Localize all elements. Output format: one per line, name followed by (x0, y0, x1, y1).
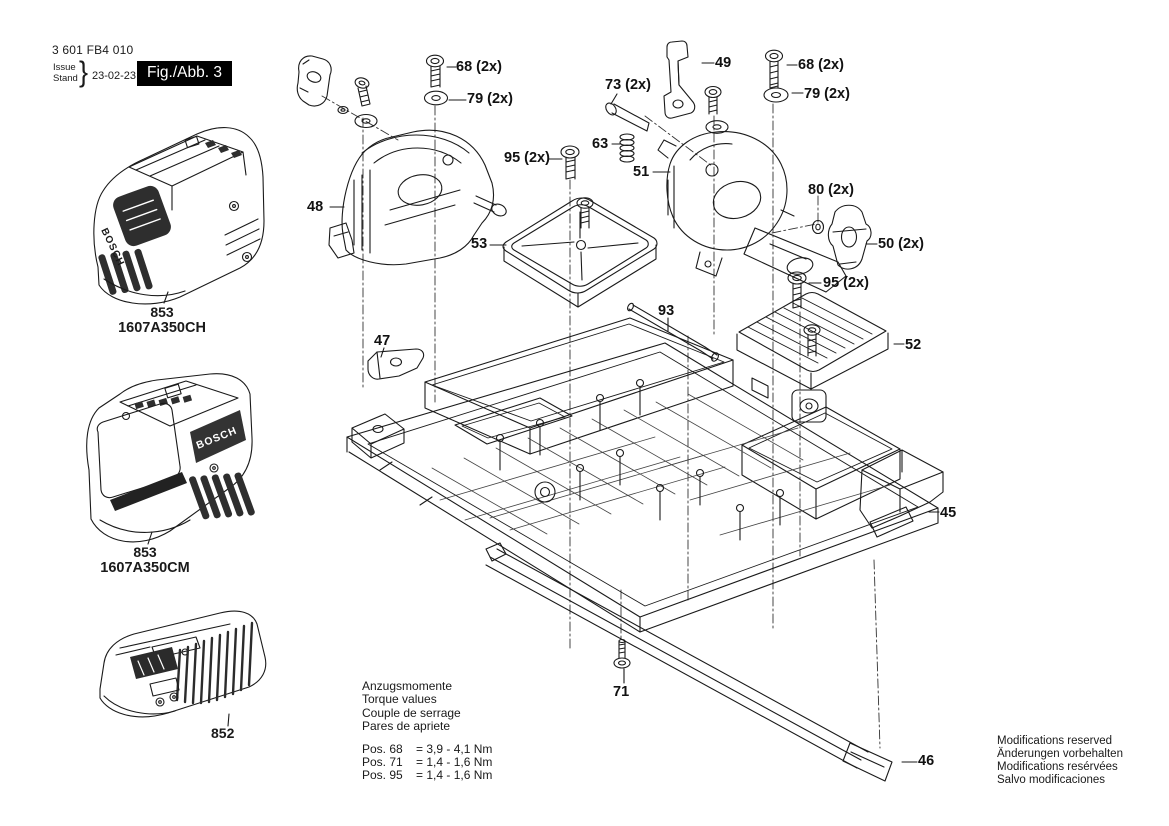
issue-label-de: Stand (53, 74, 78, 85)
washer-left-drawing (355, 115, 377, 128)
pin-73-drawing (604, 101, 649, 131)
issue-date: 23-02-23 (92, 70, 136, 82)
torque-value: = 1,4 - 1,6 Nm (416, 756, 492, 769)
callout-68-left: 68 (2x) (456, 59, 502, 75)
callout-48: 48 (307, 199, 323, 215)
battery-cm-ref: 853 (80, 545, 210, 560)
screw-71-drawing (614, 640, 630, 669)
part-50-knob-drawing (828, 205, 871, 269)
battery-ch-drawing: BOSCH (94, 128, 264, 304)
washer-79-right-drawing (764, 88, 788, 102)
part-53-drawing (503, 198, 657, 307)
issue-brace: } (79, 56, 88, 89)
modifications-fr: Modifications resérvées (997, 761, 1123, 774)
torque-pos: Pos. 95 (362, 769, 416, 782)
callout-52: 52 (905, 337, 921, 353)
callout-68-right: 68 (2x) (798, 57, 844, 73)
callout-79-right: 79 (2x) (804, 86, 850, 102)
screw-95-in-53-drawing (577, 198, 593, 228)
torque-value: = 3,9 - 4,1 Nm (416, 743, 492, 756)
document-part-number: 3 601 FB4 010 (52, 43, 133, 57)
battery-cm-label: 853 1607A350CM (80, 545, 210, 576)
screw-68-right-drawing (766, 50, 783, 88)
battery-cm-model: 1607A350CM (80, 560, 210, 576)
callout-46: 46 (918, 753, 934, 769)
callout-47: 47 (374, 333, 390, 349)
washer-79-left-drawing (425, 91, 448, 105)
cable-clamp-drawing (297, 56, 331, 106)
figure-number-badge: Fig./Abb. 3 (137, 61, 232, 86)
battery-ch-model: 1607A350CH (100, 320, 224, 336)
torque-row: Pos. 95 = 1,4 - 1,6 Nm (362, 769, 492, 782)
charger-ref: 852 (211, 726, 234, 741)
issue-label: Issue Stand (53, 63, 78, 84)
callout-49: 49 (715, 55, 731, 71)
screw-68-second-drawing (705, 87, 721, 115)
callout-93: 93 (658, 303, 674, 319)
small-screw-left-drawing (354, 76, 370, 106)
callout-53: 53 (471, 236, 487, 252)
torque-rows: Pos. 68 = 3,9 - 4,1 Nm Pos. 71 = 1,4 - 1… (362, 743, 492, 783)
modifications-es: Salvo modificaciones (997, 774, 1123, 787)
part-51-drawing (658, 132, 846, 292)
torque-note: Anzugsmomente Torque values Couple de se… (362, 680, 492, 783)
modifications-en: Modifications reserved (997, 735, 1123, 748)
torque-title-en: Torque values (362, 693, 492, 706)
callout-95-left: 95 (2x) (504, 150, 550, 166)
callout-51: 51 (633, 164, 649, 180)
callout-73: 73 (2x) (605, 77, 651, 93)
part-52-drawing (737, 293, 888, 423)
base-plate-drawing (347, 318, 938, 632)
exploded-view-drawing: BOSCH (0, 0, 1169, 826)
battery-cm-drawing: BOSCH (87, 374, 256, 542)
battery-ch-ref: 853 (100, 305, 224, 320)
parts-diagram-sheet: BOSCH (0, 0, 1169, 826)
torque-row: Pos. 68 = 3,9 - 4,1 Nm (362, 743, 492, 756)
callout-95-right: 95 (2x) (823, 275, 869, 291)
part-47-drawing (368, 349, 424, 379)
charger-label: 852 (211, 726, 234, 741)
part-46-rail-drawing (486, 543, 892, 781)
torque-title-fr: Couple de serrage (362, 707, 492, 720)
torque-pos: Pos. 68 (362, 743, 416, 756)
callout-63: 63 (592, 136, 608, 152)
torque-pos: Pos. 71 (362, 756, 416, 769)
callout-71: 71 (613, 684, 629, 700)
torque-value: = 1,4 - 1,6 Nm (416, 769, 492, 782)
screw-95-left-drawing (561, 146, 579, 179)
screw-68-left-drawing (427, 55, 444, 87)
torque-title-de: Anzugsmomente (362, 680, 492, 693)
torque-row: Pos. 71 = 1,4 - 1,6 Nm (362, 756, 492, 769)
battery-ch-label: 853 1607A350CH (100, 305, 224, 336)
leader-lines (148, 63, 939, 762)
torque-title-es: Pares de apriete (362, 720, 492, 733)
callout-50: 50 (2x) (878, 236, 924, 252)
callout-80: 80 (2x) (808, 182, 854, 198)
part-49-drawing (664, 41, 695, 118)
modifications-de: Änderungen vorbehalten (997, 748, 1123, 761)
spring-63-drawing (620, 134, 634, 162)
issue-label-en: Issue (53, 63, 78, 74)
callout-79-left: 79 (2x) (467, 91, 513, 107)
charger-drawing (100, 611, 266, 717)
modifications-note: Modifications reserved Änderungen vorbeh… (997, 735, 1123, 787)
callout-45: 45 (940, 505, 956, 521)
small-washer-left-drawing (338, 107, 348, 114)
